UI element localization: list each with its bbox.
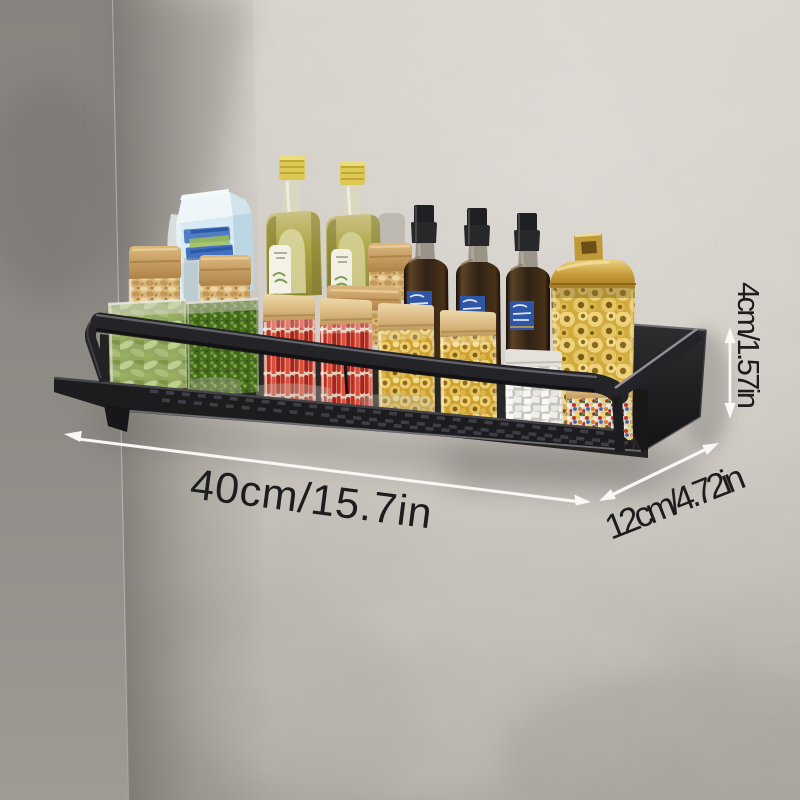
svg-text:4cm/1.57in: 4cm/1.57in bbox=[731, 282, 766, 409]
